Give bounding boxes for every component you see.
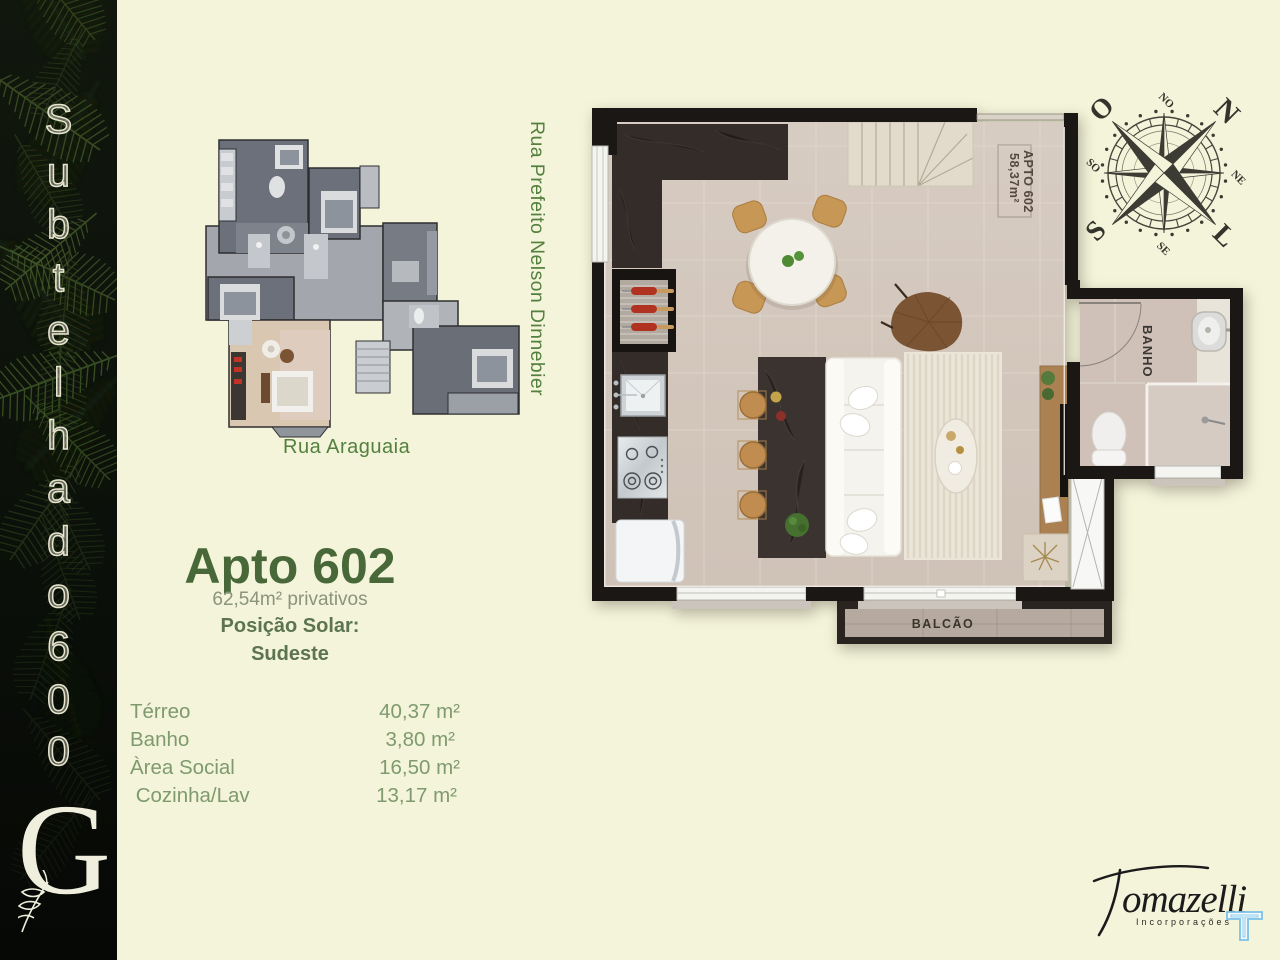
svg-text:BANHO: BANHO <box>1140 325 1155 378</box>
svg-text:NO: NO <box>1156 91 1176 111</box>
svg-text:O: O <box>1083 90 1120 127</box>
svg-text:APTO 602: APTO 602 <box>1021 150 1035 213</box>
svg-text:Incorporações: Incorporações <box>1136 917 1232 927</box>
svg-text:SO: SO <box>1084 156 1103 175</box>
svg-text:SE: SE <box>1154 240 1172 258</box>
svg-text:NE: NE <box>1228 168 1247 187</box>
svg-text:58,37m²: 58,37m² <box>1007 153 1021 203</box>
svg-text:BALCÃO: BALCÃO <box>912 616 974 631</box>
svg-text:S: S <box>1080 215 1112 248</box>
svg-text:L: L <box>1206 218 1241 253</box>
